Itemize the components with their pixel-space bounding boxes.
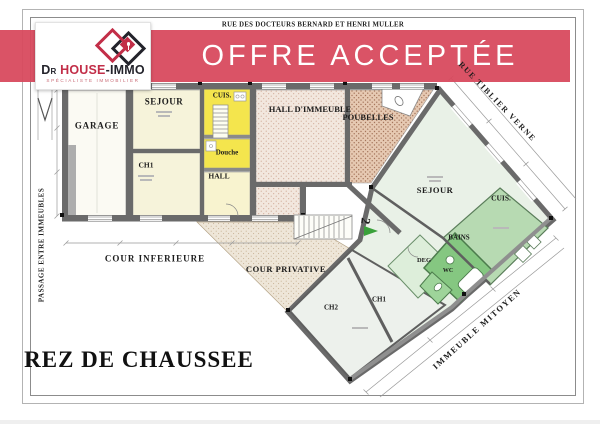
room-label-deg: DEG <box>417 258 431 265</box>
area-note <box>140 179 152 181</box>
area-note <box>427 176 443 178</box>
room-label-cuisine-right: CUIS. <box>491 194 511 202</box>
agency-logo-card: DR HOUSE-IMMO SPÉCIALISTE IMMOBILIER <box>35 22 151 90</box>
brand-prefix-sup: R <box>50 67 56 76</box>
street-label-passage: PASSAGE ENTRE IMMEUBLES <box>39 188 46 302</box>
room-label-ch1-right: CH1 <box>372 297 386 304</box>
area-note <box>138 175 154 177</box>
room-label-hall-left: HALL <box>208 172 229 180</box>
brand-tagline: SPÉCIALISTE IMMOBILIER <box>36 78 150 83</box>
plan-title: REZ DE CHAUSSEE <box>24 347 254 373</box>
room-label-douche: Douche <box>216 150 239 157</box>
street-name-top: RUE DES DOCTEURS BERNARD ET HENRI MULLER <box>222 22 404 29</box>
area-note <box>158 115 170 117</box>
logo-keyhole-slot <box>128 46 130 50</box>
passage-detail <box>38 90 52 140</box>
room-label-garage: GARAGE <box>75 122 119 131</box>
offer-accepted-text: OFFRE ACCEPTÉE <box>150 30 570 82</box>
room-label-hall-immeuble: HALL D'IMMEUBLE <box>269 105 351 114</box>
staircase-cuisine <box>213 105 228 138</box>
brand-name: DR HOUSE-IMMO <box>36 63 150 77</box>
area-note <box>493 227 509 229</box>
room-label-poubelles: POUBELLES <box>342 113 393 122</box>
brand-main: HOUSE <box>60 63 105 77</box>
brand-suffix: -IMMO <box>106 63 145 77</box>
staircase-main <box>294 215 352 239</box>
area-note <box>352 327 368 329</box>
floorplan-page: RUE DES DOCTEURS BERNARD ET HENRI MULLER… <box>0 0 600 424</box>
room-label-sejour-left: SEJOUR <box>145 98 184 107</box>
area-note <box>429 180 441 182</box>
room-label-wc: WC <box>443 268 453 274</box>
room-label-cuisine-left: CUIS. <box>213 93 231 100</box>
room-label-ch2: CH2 <box>324 305 338 312</box>
room-label-sejour-right: SEJOUR <box>417 186 454 195</box>
room-label-ch1-left: CH1 <box>139 161 154 169</box>
room-label-bains: BAINS <box>448 235 469 242</box>
area-label-cour-privative: COUR PRIVATIVE <box>246 265 326 274</box>
area-label-cour-inferieure: COUR INFERIEURE <box>105 255 205 264</box>
area-note <box>156 111 172 113</box>
